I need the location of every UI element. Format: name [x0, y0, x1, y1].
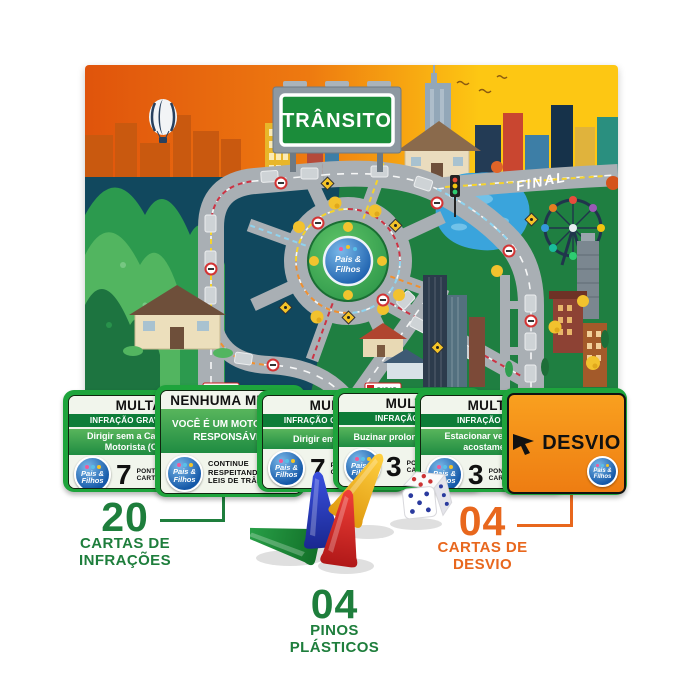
game-board: Pais & Filhos TRÂNSITO FINAL — [85, 65, 618, 397]
annotation-cartas-infracoes: 20 CARTAS DE INFRAÇÕES — [60, 498, 190, 569]
roundabout-center: Pais & Filhos — [308, 221, 388, 301]
dice — [400, 469, 453, 520]
logo-figures — [91, 465, 95, 469]
pais-filhos-logo-center: Pais & Filhos — [324, 237, 372, 285]
desvio-label: DESVIO — [542, 432, 621, 455]
annotation-number: 04 — [272, 585, 397, 623]
product-photo: Pais & Filhos TRÂNSITO FINAL — [0, 0, 700, 700]
logo-figures — [601, 464, 604, 467]
annotation-number: 20 — [60, 498, 190, 536]
svg-text:Pais &: Pais & — [335, 254, 361, 264]
card-points: 3 — [468, 461, 484, 489]
board-title: TRÂNSITO — [282, 108, 392, 132]
card-desvio: DESVIO Pais & Filhos — [502, 388, 627, 495]
pais-filhos-logo: Pais & Filhos — [74, 456, 111, 489]
game-board-art: Pais & Filhos TRÂNSITO FINAL — [85, 65, 618, 397]
cursor-arrow-icon — [512, 432, 536, 456]
annotation-pinos-plasticos: 04 PINOS PLÁSTICOS — [272, 585, 397, 656]
svg-text:Filhos: Filhos — [335, 264, 360, 274]
pais-filhos-logo: Pais & Filhos — [587, 456, 618, 487]
pais-filhos-logo: Pais & Filhos — [166, 455, 203, 492]
card-points: 7 — [116, 461, 132, 489]
game-pieces — [250, 442, 455, 574]
